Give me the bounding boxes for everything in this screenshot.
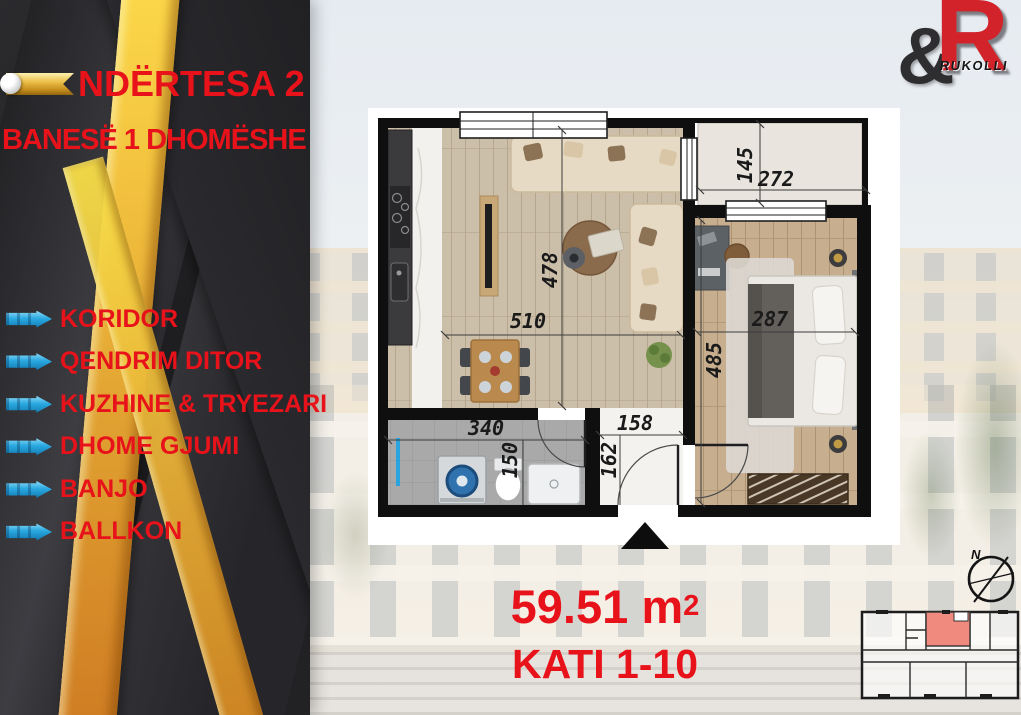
room-label: KUZHINE & TRYEZARI bbox=[60, 390, 327, 419]
room-label: DHOME GJUMI bbox=[60, 432, 239, 461]
building-title: NDËRTESA 2 bbox=[78, 66, 305, 102]
washing-machine bbox=[438, 456, 486, 504]
arrow-bullet-icon bbox=[6, 396, 52, 413]
bed bbox=[748, 249, 859, 453]
area-label: 59.51 m2 bbox=[440, 583, 770, 630]
list-item: QENDRIM DITOR bbox=[6, 350, 327, 374]
kitchen-counter bbox=[388, 130, 412, 345]
floor-plan: 478 510 145 272 287 485 340 150 158 162 bbox=[368, 108, 900, 558]
arrow-bullet-icon bbox=[6, 311, 52, 328]
background-tree bbox=[901, 430, 961, 560]
highlighted-unit-notch bbox=[954, 612, 968, 621]
dim-living-height: 478 bbox=[538, 252, 562, 288]
list-item: KORIDOR bbox=[6, 307, 327, 331]
list-item: KUZHINE & TRYEZARI bbox=[6, 392, 327, 416]
room-label: BALLKON bbox=[60, 517, 182, 546]
dim-bedroom-height: 485 bbox=[702, 342, 726, 378]
arrow-bullet-icon bbox=[6, 523, 52, 540]
room-label: QENDRIM DITOR bbox=[60, 347, 262, 376]
floors-label: KATI 1-10 bbox=[440, 644, 770, 685]
key-plan bbox=[858, 604, 1021, 704]
shower-tray bbox=[528, 464, 580, 504]
ribbon-pin-icon bbox=[0, 72, 78, 96]
dim-living-width: 510 bbox=[510, 309, 546, 333]
dim-balcony-height: 145 bbox=[733, 147, 757, 183]
apartment-type: BANESË 1 DHOMËSHE bbox=[0, 126, 310, 155]
pin-ball-icon bbox=[0, 73, 21, 94]
compass-north-label: N bbox=[971, 547, 981, 562]
logo-initial: R bbox=[935, 0, 1009, 86]
dim-balcony-width: 272 bbox=[757, 167, 794, 191]
area-exponent: 2 bbox=[683, 590, 699, 622]
bedroom-bench-rug bbox=[748, 474, 848, 504]
room-balcony-floor bbox=[698, 123, 862, 205]
poster: NDËRTESA 2 BANESË 1 DHOMËSHE KORIDOR QEN… bbox=[0, 0, 1021, 715]
arrow-bullet-icon bbox=[6, 353, 52, 370]
list-item: DHOME GJUMI bbox=[6, 435, 327, 459]
list-item: BANJO bbox=[6, 477, 327, 501]
company-logo: & R RUKOLLI bbox=[895, 0, 1021, 112]
compass-icon: N bbox=[960, 546, 1021, 608]
area-value: 59.51 m bbox=[511, 580, 683, 633]
dim-bathroom-height: 150 bbox=[498, 442, 522, 478]
tv-unit bbox=[480, 196, 498, 296]
arrow-bullet-icon bbox=[6, 481, 52, 498]
towel-rail bbox=[396, 438, 400, 486]
dining-table bbox=[460, 340, 530, 402]
title-block: NDËRTESA 2 BANESË 1 DHOMËSHE bbox=[0, 66, 310, 155]
room-list: KORIDOR QENDRIM DITOR KUZHINE & TRYEZARI… bbox=[6, 307, 327, 563]
dim-bedroom-width: 287 bbox=[751, 307, 788, 331]
arrow-bullet-icon bbox=[6, 438, 52, 455]
room-label: KORIDOR bbox=[60, 305, 178, 334]
dim-corridor-width: 158 bbox=[617, 411, 653, 435]
footer-block: 59.51 m2 KATI 1-10 bbox=[440, 583, 770, 685]
list-item: BALLKON bbox=[6, 520, 327, 544]
dim-bathroom-width: 340 bbox=[467, 416, 504, 440]
plant bbox=[646, 342, 672, 368]
room-label: BANJO bbox=[60, 475, 148, 504]
logo-company-name: RUKOLLI bbox=[939, 58, 1009, 73]
dim-corridor-height: 162 bbox=[597, 442, 621, 478]
